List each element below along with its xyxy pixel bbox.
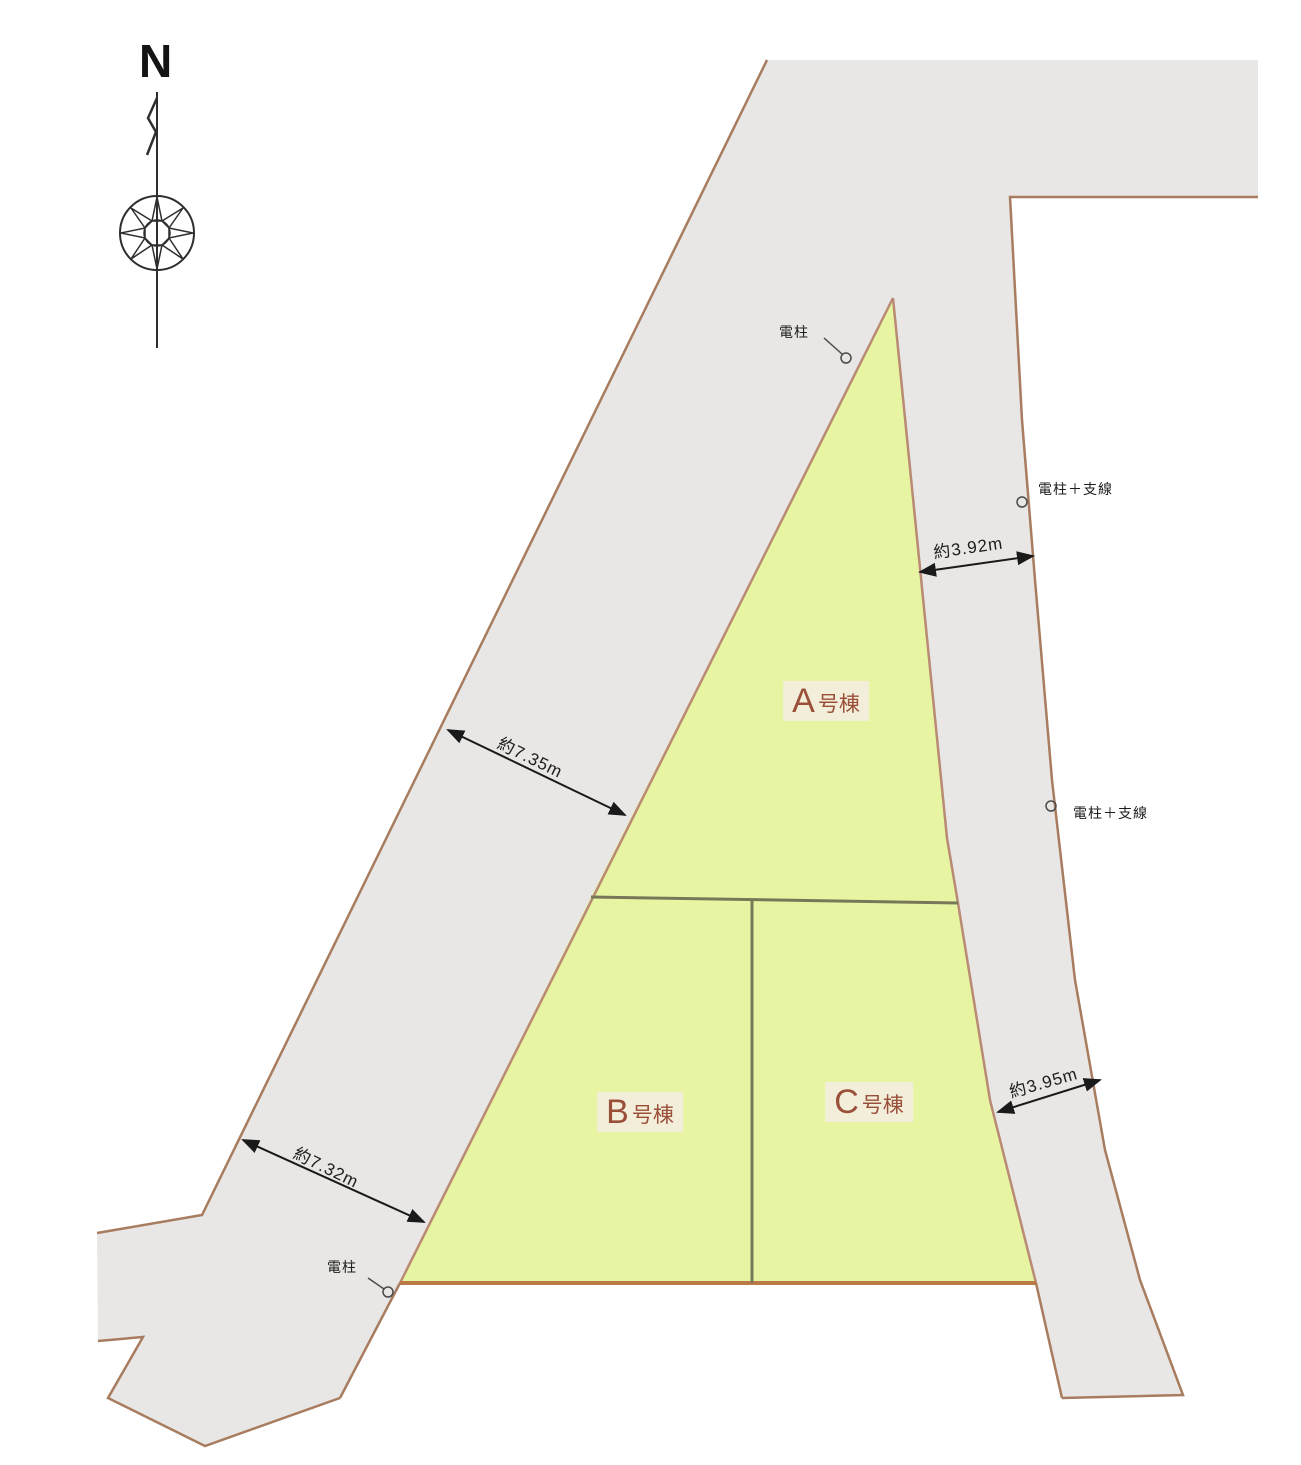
lot-c-suffix: 号棟 [862, 1089, 904, 1116]
compass-north-label: N [139, 38, 172, 84]
lot-b-suffix: 号棟 [632, 1099, 674, 1126]
lot-b-label: B 号棟 [597, 1092, 683, 1132]
site-plan-drawing [0, 0, 1301, 1465]
compass-rose-icon [120, 92, 194, 348]
lot-c-label: C 号棟 [825, 1082, 913, 1122]
lot-a-letter: A [792, 684, 815, 718]
pole-label-bottom: 電柱 [327, 1257, 357, 1277]
lot-b-letter: B [606, 1095, 629, 1129]
lot-a-label: A 号棟 [783, 681, 869, 721]
pole-label-right-lower: 電柱＋支線 [1073, 803, 1148, 823]
pole-label-right-upper: 電柱＋支線 [1038, 479, 1113, 499]
lot-a-suffix: 号棟 [818, 688, 860, 715]
site-plan-canvas: N A 号棟 B 号棟 C 号棟 約7.35m 約7.32m 約3.92m 約3… [0, 0, 1301, 1465]
pole-label-top: 電柱 [779, 322, 809, 342]
lot-c-letter: C [834, 1085, 859, 1119]
